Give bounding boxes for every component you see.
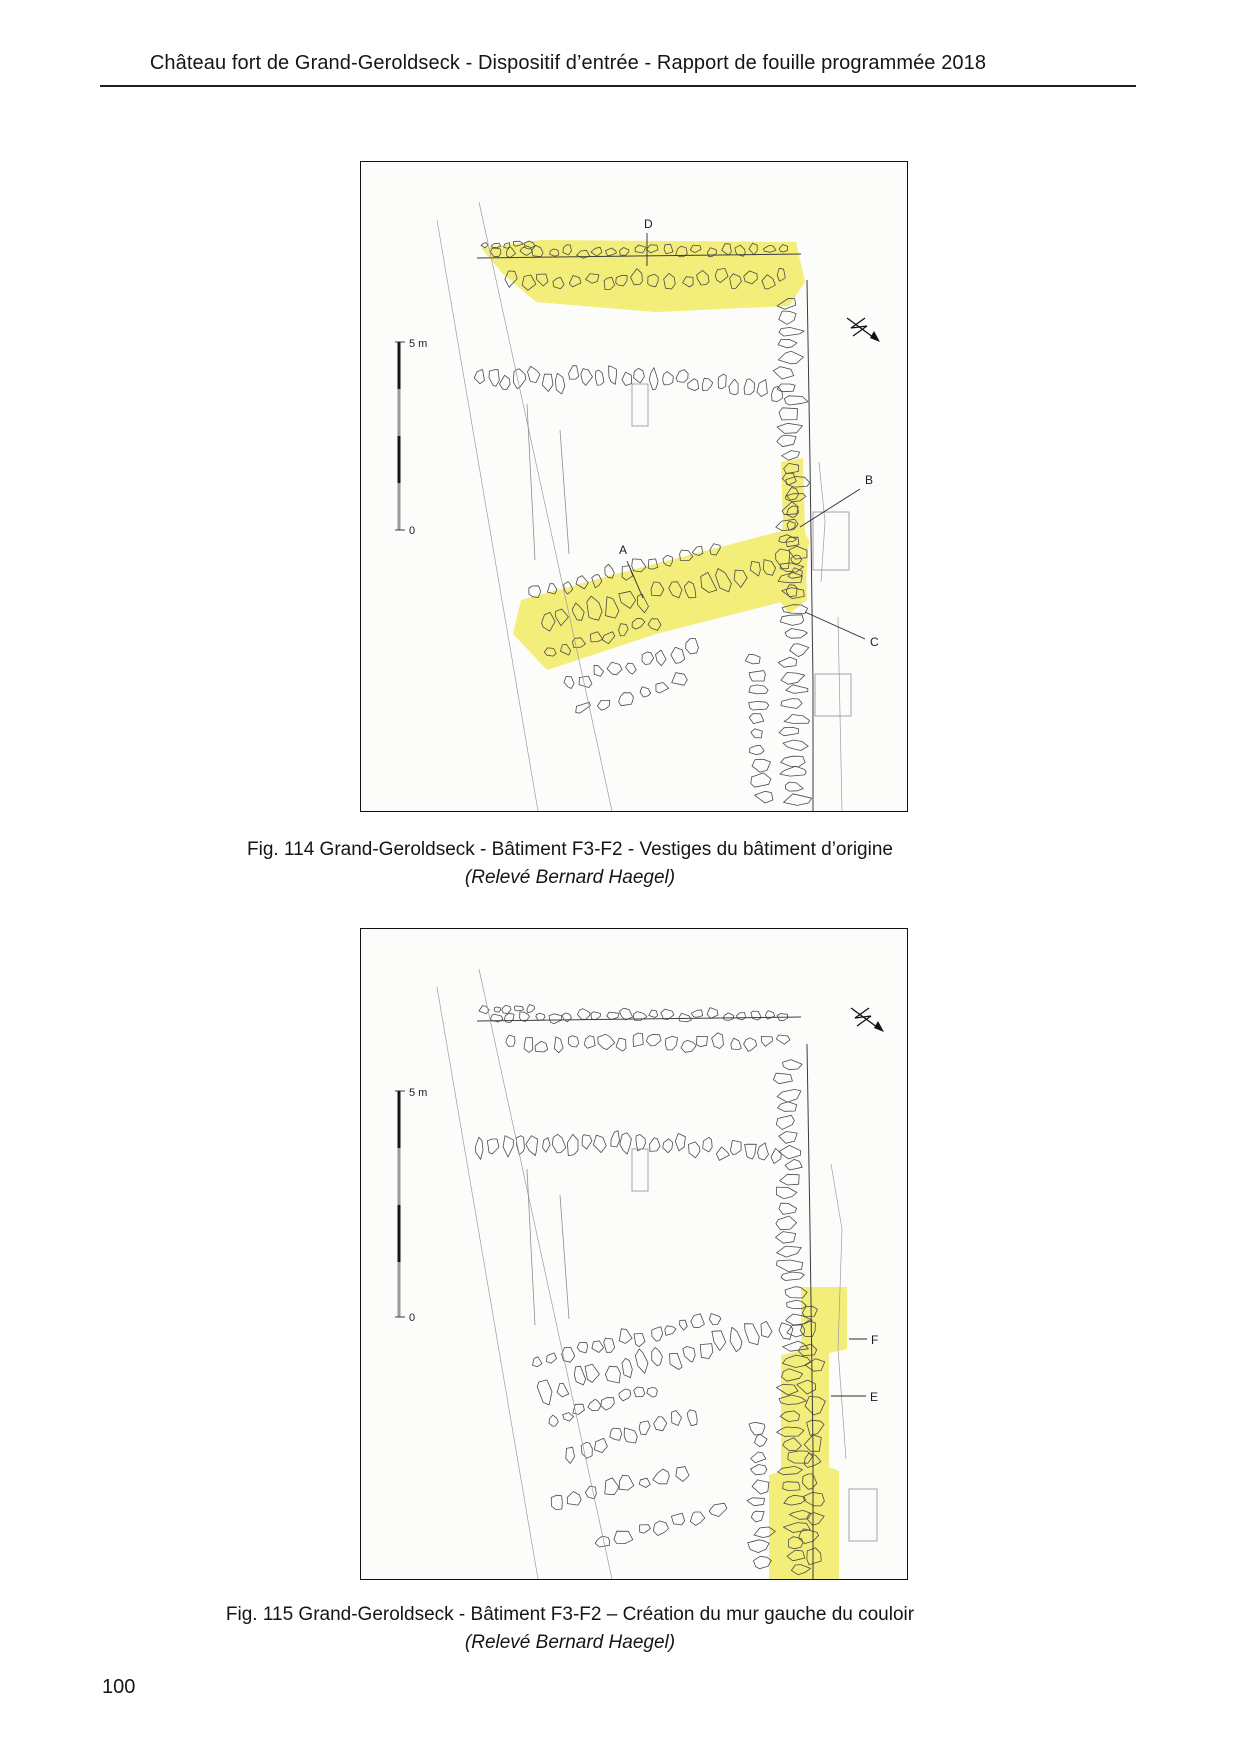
scale-bar: 5 m 0 [395, 1087, 427, 1324]
label-a: A [619, 543, 627, 557]
highlight-wall-ef [769, 1287, 847, 1579]
figure-114-highlights [481, 240, 809, 670]
scale-bar: 5 m 0 [395, 338, 427, 537]
figure-115-caption: Fig. 115 Grand-Geroldseck - Bâtiment F3-… [0, 1601, 1140, 1657]
header-rule [100, 85, 1136, 87]
highlight-wall-d [481, 240, 805, 312]
figure-114-caption: Fig. 114 Grand-Geroldseck - Bâtiment F3-… [0, 836, 1140, 892]
scale-label-top: 5 m [409, 338, 427, 350]
figure-115-frame: 5 m 0 F E [360, 928, 908, 1580]
figure-114-frame: 5 m 0 D A B C [360, 161, 908, 812]
label-e: E [870, 1390, 878, 1404]
figure-115-plan: 5 m 0 F E [361, 929, 907, 1579]
page-header: Château fort de Grand-Geroldseck - Dispo… [0, 52, 1136, 75]
label-b: B [865, 473, 873, 487]
report-page: { "header": { "title": "Château fort de … [0, 0, 1241, 1755]
figure-114-credit: (Relevé Bernard Haegel) [0, 864, 1140, 892]
page-number: 100 [102, 1676, 135, 1699]
scale-label-zero: 0 [409, 1312, 415, 1324]
figure-115-credit: (Relevé Bernard Haegel) [0, 1629, 1140, 1657]
figure-114-plan: 5 m 0 D A B C [361, 162, 907, 811]
label-f: F [871, 1333, 878, 1347]
north-arrow-icon [851, 1008, 884, 1032]
figure-115-caption-text: Fig. 115 Grand-Geroldseck - Bâtiment F3-… [0, 1601, 1140, 1629]
figure-114-caption-text: Fig. 114 Grand-Geroldseck - Bâtiment F3-… [0, 836, 1140, 864]
label-d: D [644, 217, 653, 231]
figure-115-highlights [769, 1287, 847, 1579]
label-c: C [870, 635, 879, 649]
north-arrow-icon [847, 318, 880, 342]
figure-114-stonework [474, 241, 811, 805]
highlight-wall-a [513, 526, 809, 670]
scale-label-top: 5 m [409, 1087, 427, 1099]
scale-label-zero: 0 [409, 525, 415, 537]
